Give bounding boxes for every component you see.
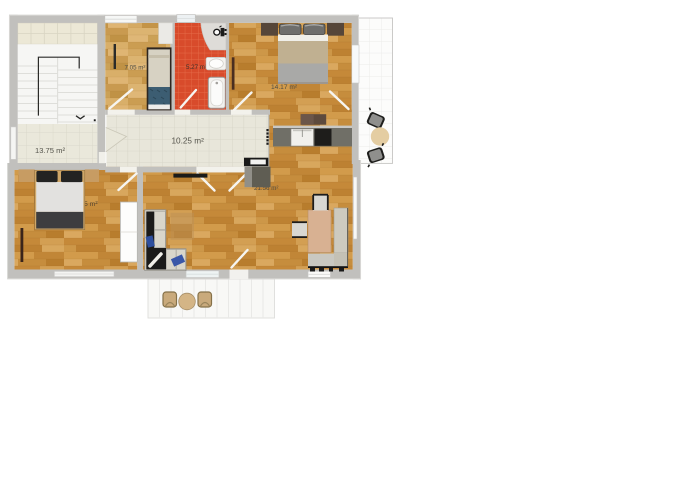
svg-text:5.27 m²: 5.27 m² xyxy=(186,64,207,71)
svg-text:13.75 m²: 13.75 m² xyxy=(35,146,65,155)
svg-text:10.25 m²: 10.25 m² xyxy=(172,137,205,146)
svg-text:7.05 m²: 7.05 m² xyxy=(125,65,146,72)
svg-text:5 m²: 5 m² xyxy=(84,201,98,208)
svg-text:14.17 m²: 14.17 m² xyxy=(271,84,298,91)
